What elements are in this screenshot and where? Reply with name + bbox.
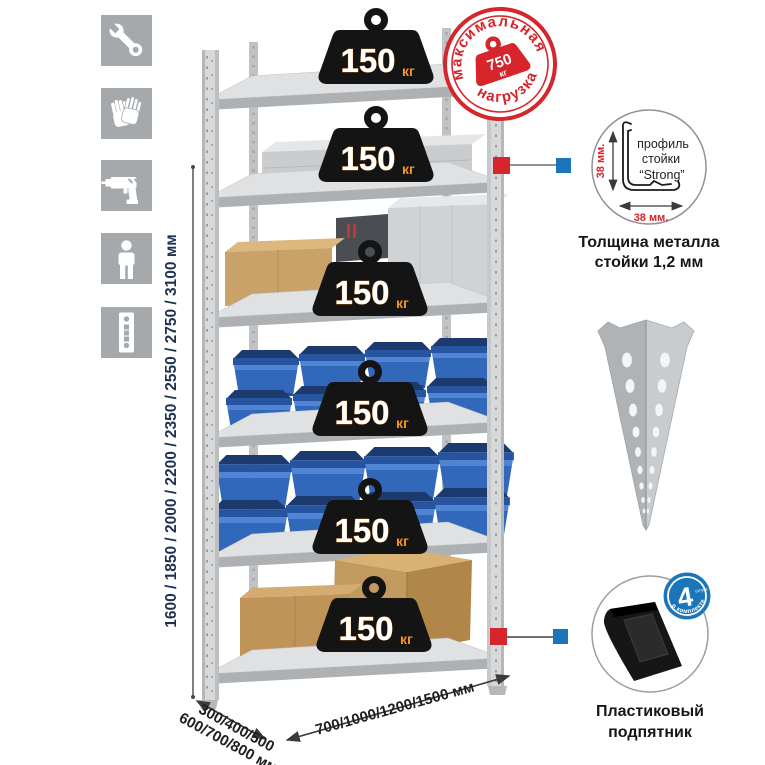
- weight-unit: кг: [400, 631, 413, 647]
- foot-callout-connector: [490, 628, 568, 645]
- weight-150kg: 150 кг: [318, 110, 433, 183]
- width-dimension: 700/1000/1200/1500 мм: [287, 676, 509, 740]
- corner-post-image: [598, 320, 694, 530]
- tile-rack-post: [101, 307, 152, 358]
- weight-unit: кг: [402, 161, 415, 177]
- weight-value: 150: [340, 42, 395, 79]
- profile-height-label: 38 мм.: [595, 144, 607, 179]
- height-dimension: 1600 / 1850 / 2000 / 2200 / 2350 / 2550 …: [163, 165, 195, 699]
- rack-post-icon: [119, 313, 134, 353]
- weight-value: 150: [334, 512, 389, 549]
- profile-caption-2: стойки 1,2 мм: [595, 254, 704, 271]
- weight-unit: кг: [396, 415, 409, 431]
- weight-value: 150: [340, 140, 395, 177]
- weight-value: 150: [334, 274, 389, 311]
- weight-150kg: 150 кг: [318, 12, 433, 85]
- tile-gloves: [101, 88, 152, 139]
- profile-detail: 38 мм. 38 мм. профиль стойки “Strong” То…: [578, 110, 719, 271]
- profile-caption-1: Толщина металла: [578, 234, 719, 251]
- height-dimension-label: 1600 / 1850 / 2000 / 2200 / 2350 / 2550 …: [163, 234, 180, 628]
- width-label: 700/1000/1200/1500 мм: [314, 679, 477, 739]
- weight-value: 150: [334, 394, 389, 431]
- foot-detail: 4 штуки в комплекте Пластиковый подпятни…: [592, 569, 714, 741]
- storage-bin: [216, 455, 292, 508]
- front-left-post: [199, 50, 219, 709]
- feature-icon-tiles: [101, 15, 152, 358]
- tile-wrench: [101, 15, 152, 66]
- storage-bin: [233, 350, 299, 396]
- profile-label-3: “Strong”: [639, 168, 684, 182]
- storage-bin: [290, 451, 366, 504]
- foot-caption-2: подпятник: [608, 724, 693, 741]
- tile-drill: [101, 160, 152, 211]
- profile-callout-connector: [493, 157, 571, 174]
- weight-unit: кг: [396, 533, 409, 549]
- tile-person: [101, 233, 152, 284]
- profile-label-2: стойки: [642, 152, 680, 166]
- infographic-svg: 1600 / 1850 / 2000 / 2200 / 2350 / 2550 …: [0, 0, 765, 765]
- foot-caption-1: Пластиковый: [596, 703, 704, 720]
- product-infographic: 1600 / 1850 / 2000 / 2200 / 2350 / 2550 …: [0, 0, 765, 765]
- weight-value: 150: [338, 610, 393, 647]
- weight-unit: кг: [402, 63, 415, 79]
- profile-width-label: 38 мм.: [634, 212, 669, 224]
- weight-unit: кг: [396, 295, 409, 311]
- max-load-stamp: максимальная нагрузка 750 кг: [430, 0, 570, 134]
- depth-dimension: 300/400/500 600/700/800 мм: [176, 694, 289, 765]
- front-right-post: [487, 34, 507, 695]
- profile-label-1: профиль: [637, 137, 689, 151]
